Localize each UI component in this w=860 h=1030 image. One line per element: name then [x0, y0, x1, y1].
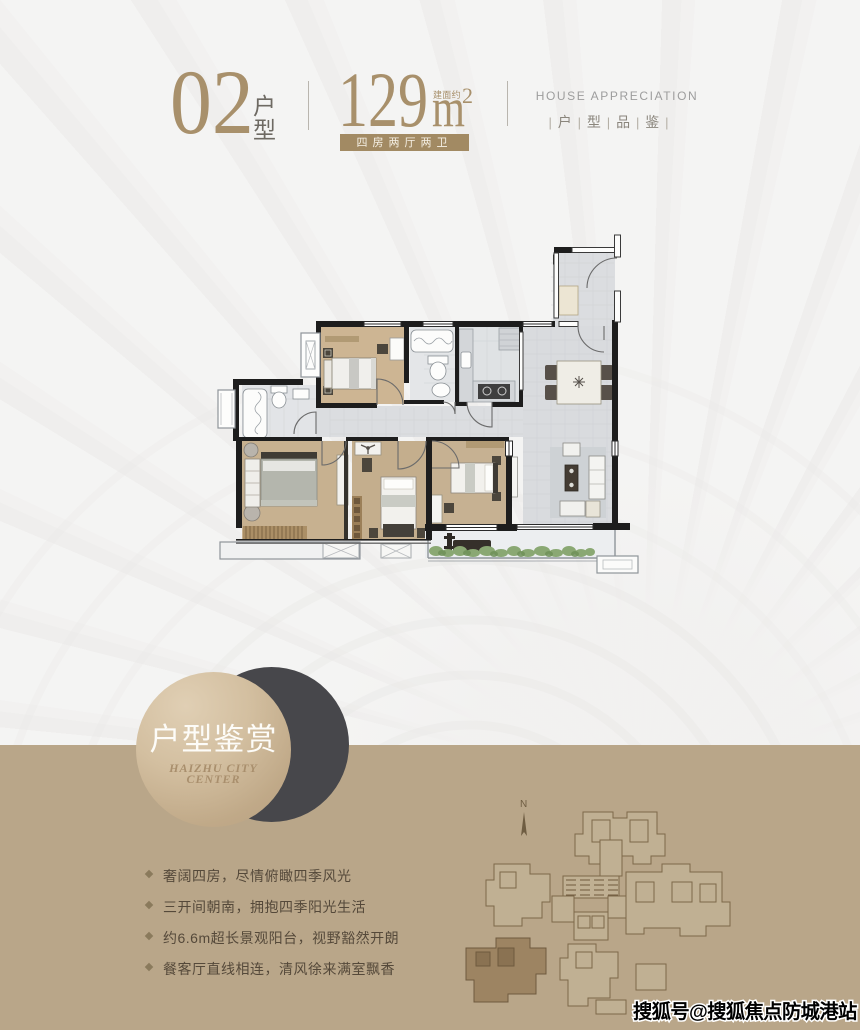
svg-text:搜狐号@搜狐焦点防城港站: 搜狐号@搜狐焦点防城港站	[633, 1000, 857, 1023]
